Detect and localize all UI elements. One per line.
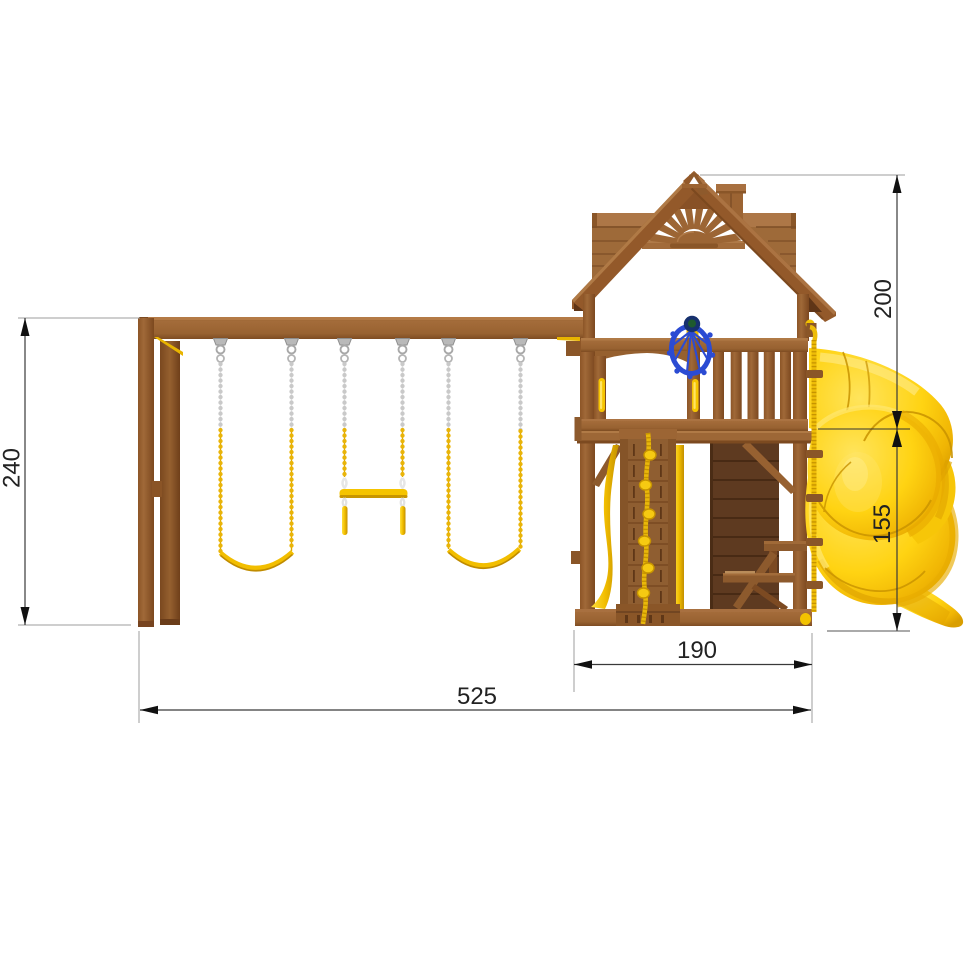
svg-text:200: 200 [870, 279, 897, 319]
svg-text:240: 240 [0, 448, 26, 488]
svg-text:155: 155 [869, 504, 896, 544]
svg-text:525: 525 [457, 683, 497, 710]
svg-text:190: 190 [677, 637, 717, 664]
